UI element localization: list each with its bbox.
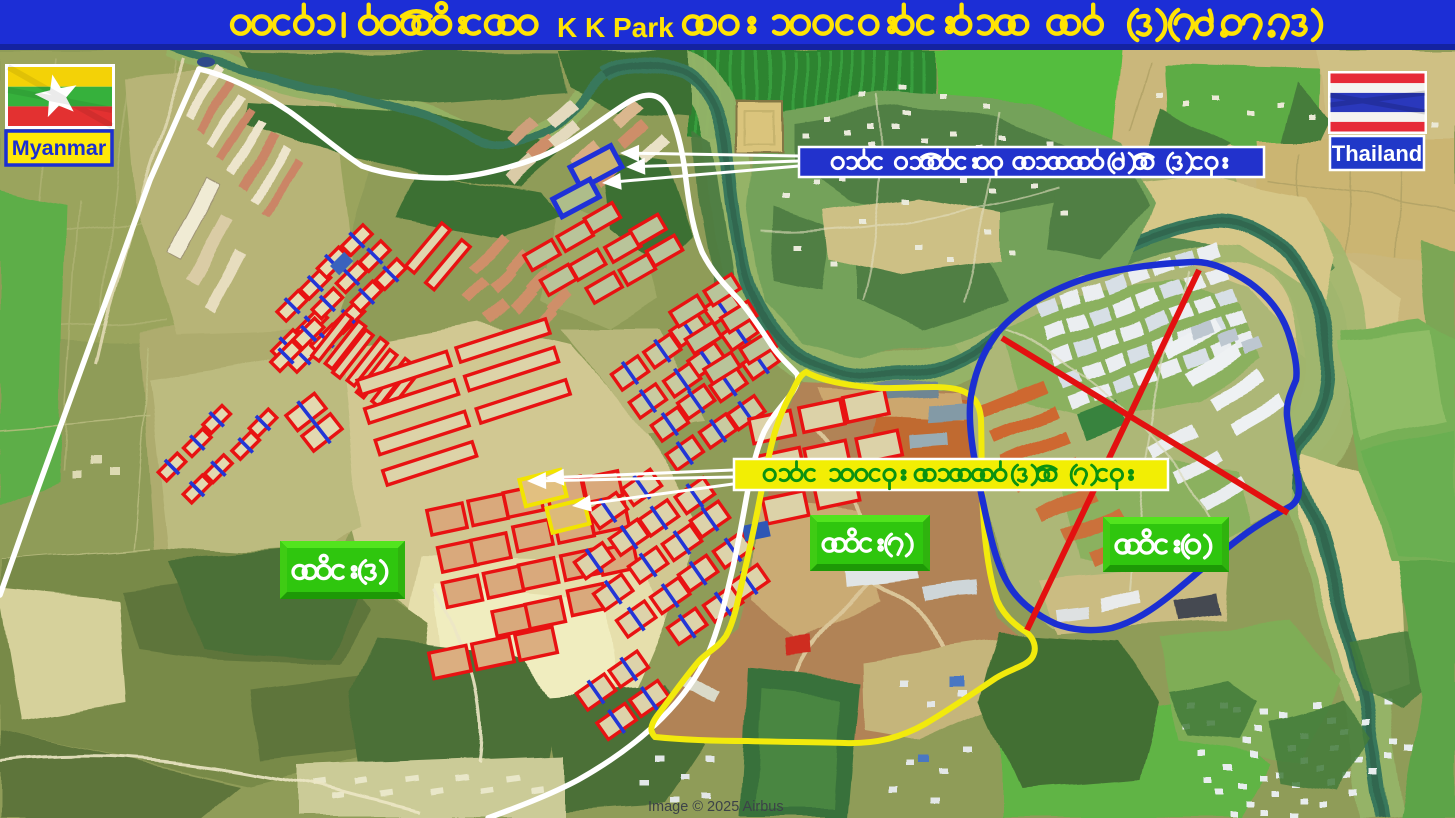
svg-text:Myanmar: Myanmar [12, 136, 107, 160]
svg-text:Thailand: Thailand [1332, 141, 1422, 166]
svg-text:Image © 2025 Airbus: Image © 2025 Airbus [648, 799, 784, 815]
svg-text:K K Park: K K Park [557, 12, 674, 43]
